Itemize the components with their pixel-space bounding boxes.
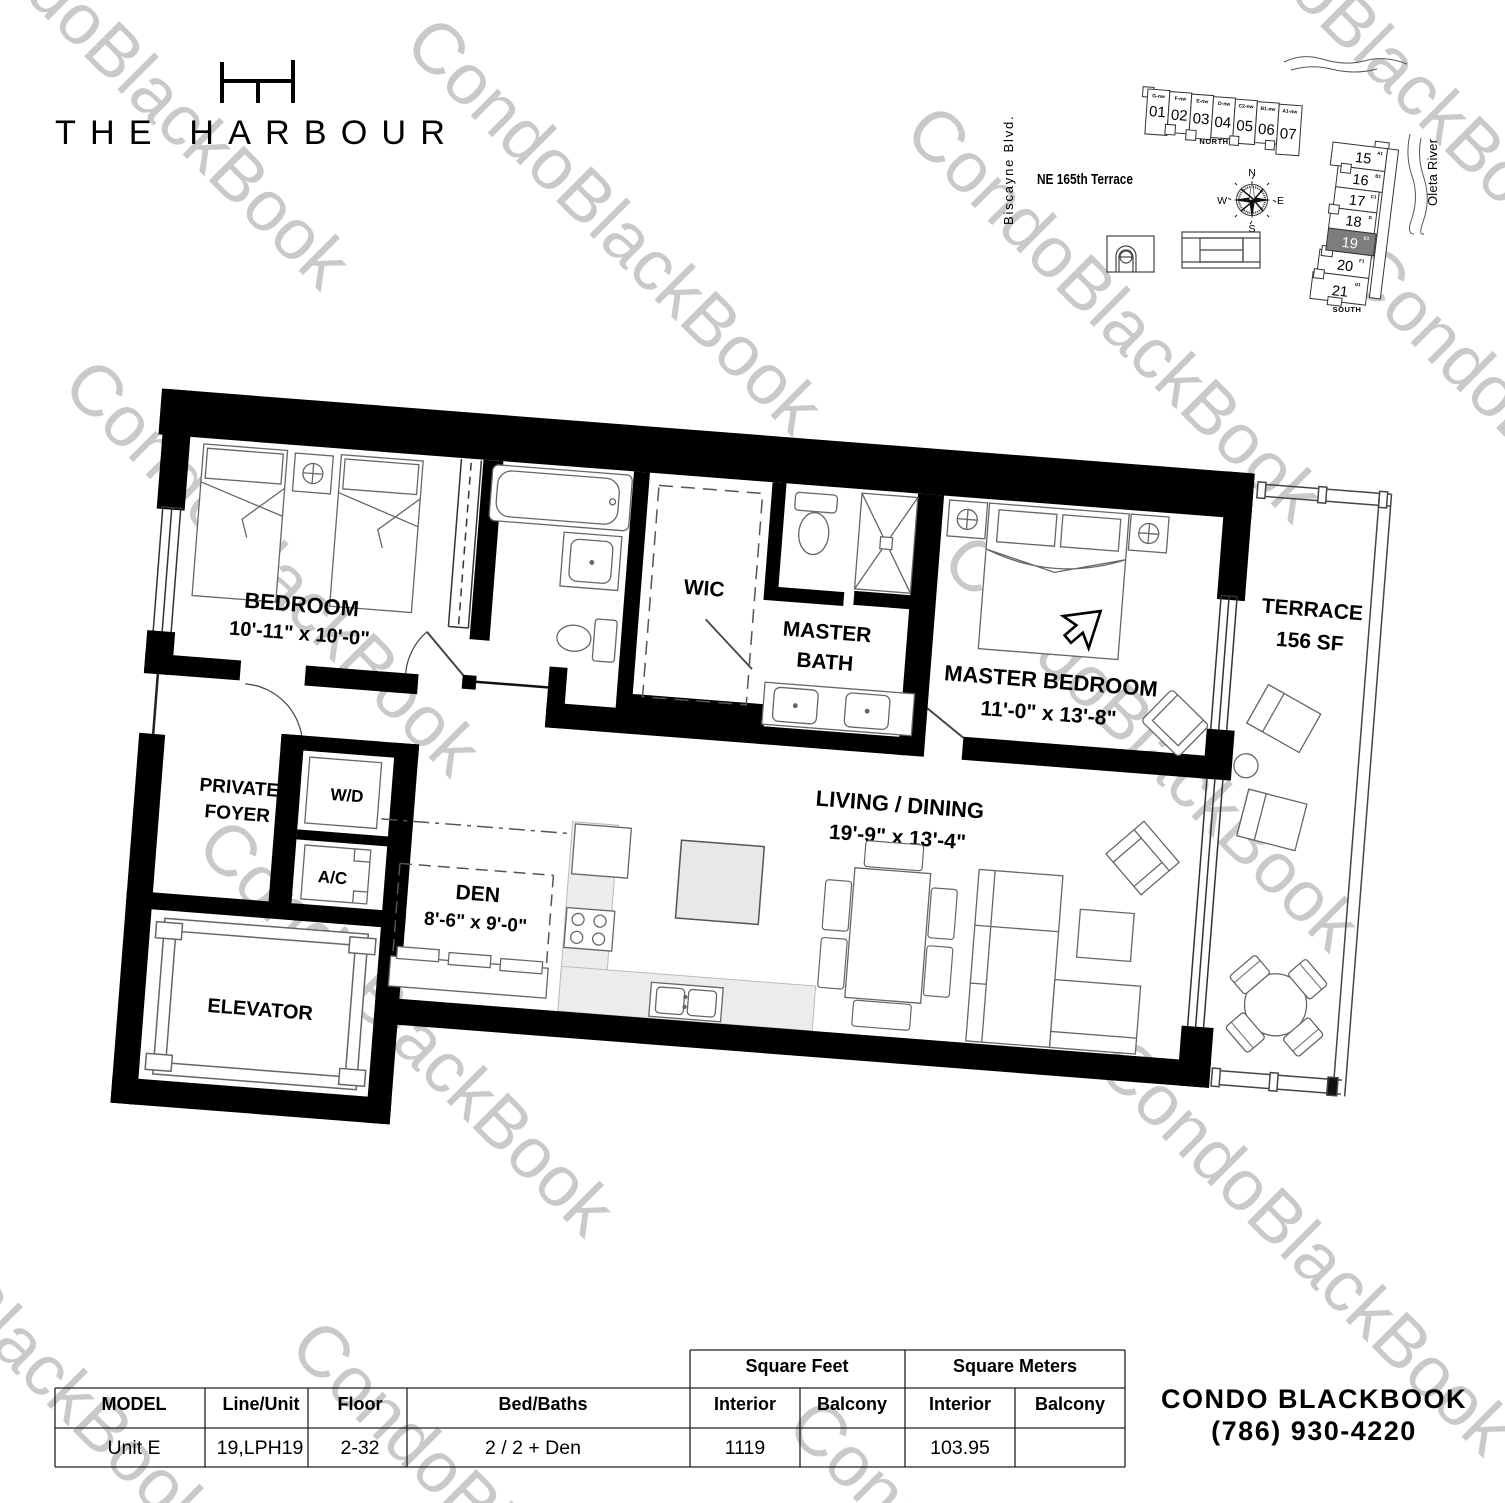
svg-text:Square Meters: Square Meters — [953, 1356, 1077, 1376]
svg-text:A/C: A/C — [317, 867, 348, 888]
svg-text:Unit E: Unit E — [107, 1437, 160, 1459]
svg-text:Line/Unit: Line/Unit — [223, 1394, 300, 1414]
svg-text:W/D: W/D — [330, 785, 364, 807]
svg-text:05: 05 — [1236, 117, 1254, 135]
svg-text:WIC: WIC — [683, 576, 725, 602]
svg-text:S: S — [1248, 223, 1255, 235]
svg-text:THE HARBOUR: THE HARBOUR — [55, 114, 459, 152]
svg-text:W: W — [1217, 195, 1227, 207]
svg-text:103.95: 103.95 — [930, 1437, 990, 1459]
svg-text:(786) 930-4220: (786) 930-4220 — [1211, 1416, 1417, 1446]
svg-text:C2-nw: C2-nw — [1238, 103, 1253, 110]
svg-text:16: 16 — [1352, 172, 1370, 190]
svg-text:01: 01 — [1148, 103, 1166, 121]
svg-text:2-32: 2-32 — [340, 1437, 379, 1459]
svg-text:B1-nw: B1-nw — [1260, 106, 1275, 113]
svg-text:03: 03 — [1192, 110, 1210, 128]
svg-text:2 / 2 + Den: 2 / 2 + Den — [485, 1437, 581, 1459]
svg-text:Biscayne Blvd.: Biscayne Blvd. — [1001, 115, 1016, 225]
svg-text:SOUTH: SOUTH — [1333, 305, 1362, 314]
svg-text:A1-nw: A1-nw — [1282, 108, 1297, 115]
svg-text:Square Feet: Square Feet — [745, 1356, 848, 1376]
svg-text:NE 165th Terrace: NE 165th Terrace — [1037, 171, 1133, 188]
svg-text:BATH: BATH — [796, 649, 854, 676]
svg-text:19,LPH19: 19,LPH19 — [217, 1437, 304, 1459]
svg-text:CONDO BLACKBOOK: CONDO BLACKBOOK — [1161, 1384, 1467, 1414]
svg-text:04: 04 — [1214, 114, 1232, 132]
svg-text:1119: 1119 — [725, 1437, 766, 1459]
svg-text:07: 07 — [1279, 125, 1297, 143]
svg-text:E: E — [1277, 195, 1284, 207]
svg-text:18: 18 — [1344, 213, 1362, 231]
svg-text:02: 02 — [1170, 107, 1188, 125]
svg-text:17: 17 — [1348, 192, 1366, 210]
svg-text:Floor: Floor — [338, 1394, 383, 1414]
svg-text:20: 20 — [1336, 257, 1354, 275]
svg-text:N: N — [1248, 167, 1256, 179]
svg-text:21: 21 — [1331, 283, 1349, 301]
svg-text:G-nw: G-nw — [1152, 93, 1165, 100]
svg-text:Bed/Baths: Bed/Baths — [498, 1394, 587, 1414]
svg-text:06: 06 — [1258, 121, 1276, 139]
svg-text:B1: B1 — [1375, 173, 1382, 179]
svg-text:Interior: Interior — [929, 1394, 991, 1414]
svg-text:Balcony: Balcony — [817, 1394, 887, 1414]
svg-text:A1: A1 — [1377, 151, 1384, 157]
svg-text:E-nw: E-nw — [1196, 98, 1208, 105]
svg-text:NORTH: NORTH — [1199, 137, 1228, 146]
svg-text:Interior: Interior — [714, 1394, 776, 1414]
svg-text:19: 19 — [1341, 235, 1359, 253]
svg-text:C1: C1 — [1371, 194, 1378, 200]
svg-text:15: 15 — [1354, 150, 1372, 168]
svg-text:Balcony: Balcony — [1035, 1394, 1105, 1414]
svg-text:MODEL: MODEL — [102, 1394, 167, 1414]
svg-text:D-nw: D-nw — [1218, 101, 1231, 108]
svg-text:G1: G1 — [1355, 282, 1362, 288]
svg-text:F-nw: F-nw — [1174, 96, 1186, 103]
svg-text:DEN: DEN — [455, 881, 501, 907]
